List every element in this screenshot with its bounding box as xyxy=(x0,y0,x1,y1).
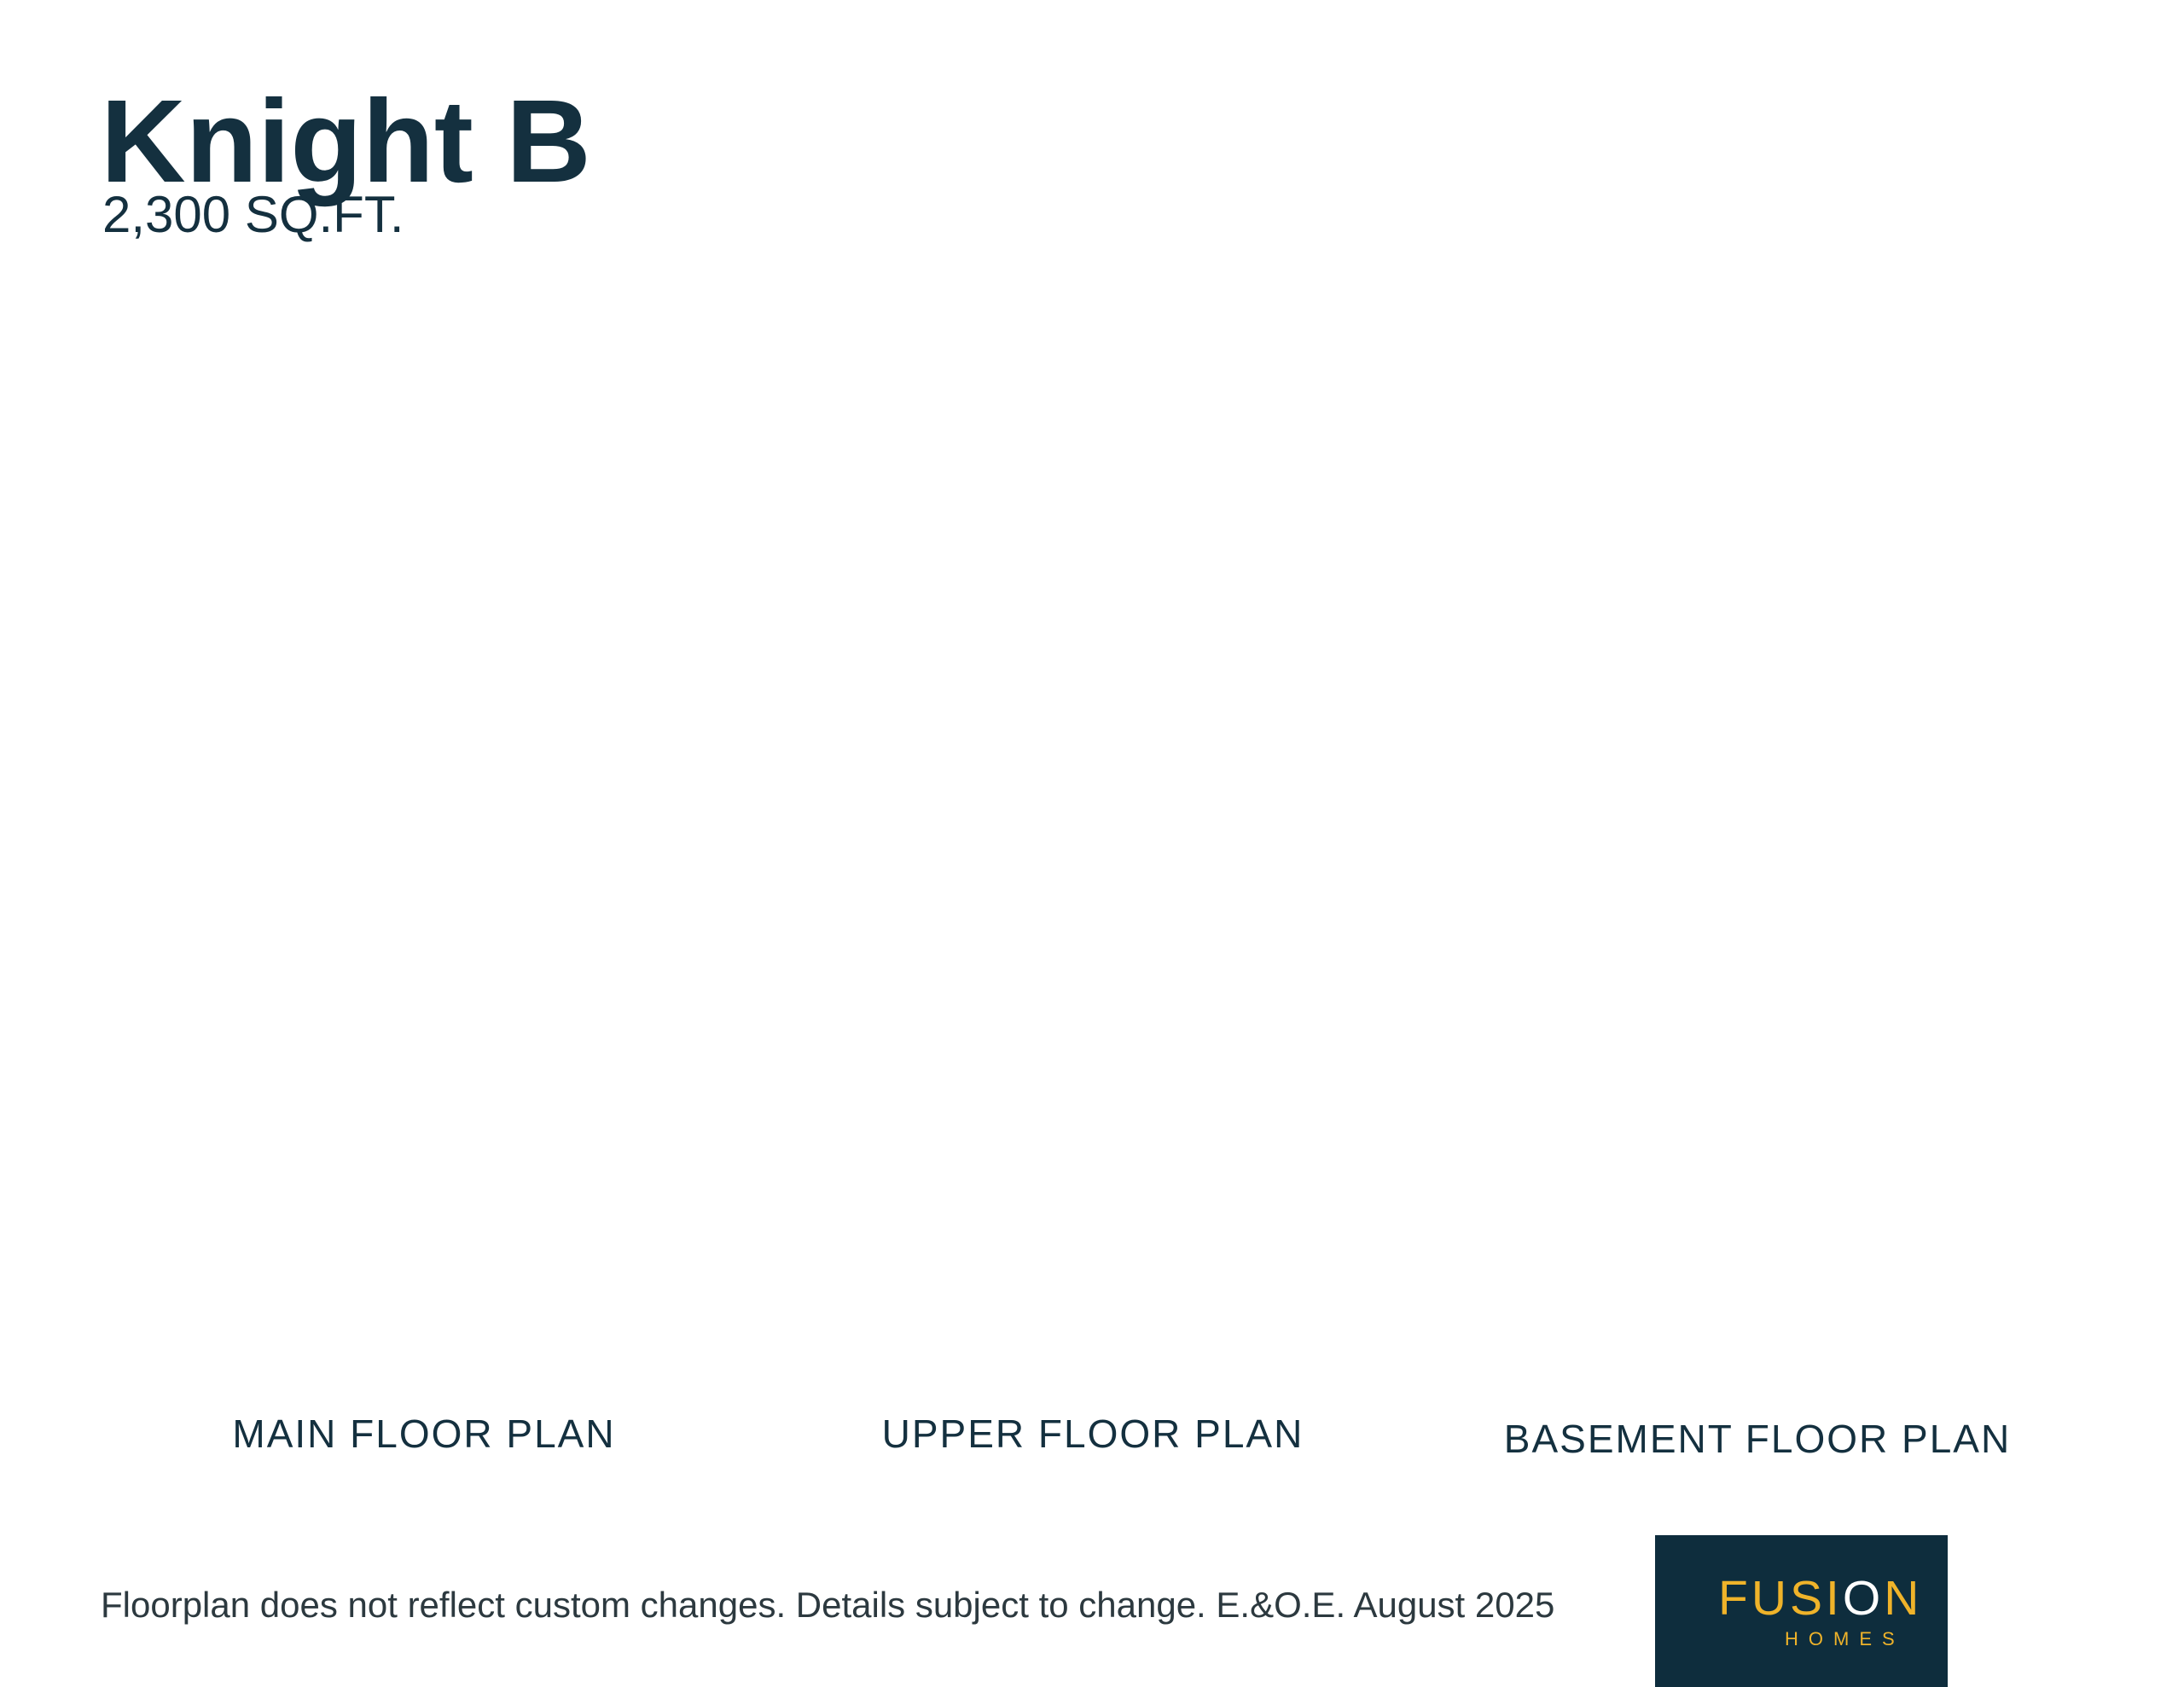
svg-text:UPPER FLOOR PLAN: UPPER FLOOR PLAN xyxy=(882,1412,1304,1456)
svg-text:FUSION: FUSION xyxy=(1718,1571,1922,1626)
svg-text:2,300 SQ.FT.: 2,300 SQ.FT. xyxy=(102,186,404,243)
svg-text:HOMES: HOMES xyxy=(1785,1628,1905,1649)
svg-text:BASEMENT FLOOR PLAN: BASEMENT FLOOR PLAN xyxy=(1504,1417,2011,1461)
svg-text:Floorplan does not reflect cus: Floorplan does not reflect custom change… xyxy=(101,1585,1554,1625)
svg-text:MAIN FLOOR PLAN: MAIN FLOOR PLAN xyxy=(232,1412,615,1456)
